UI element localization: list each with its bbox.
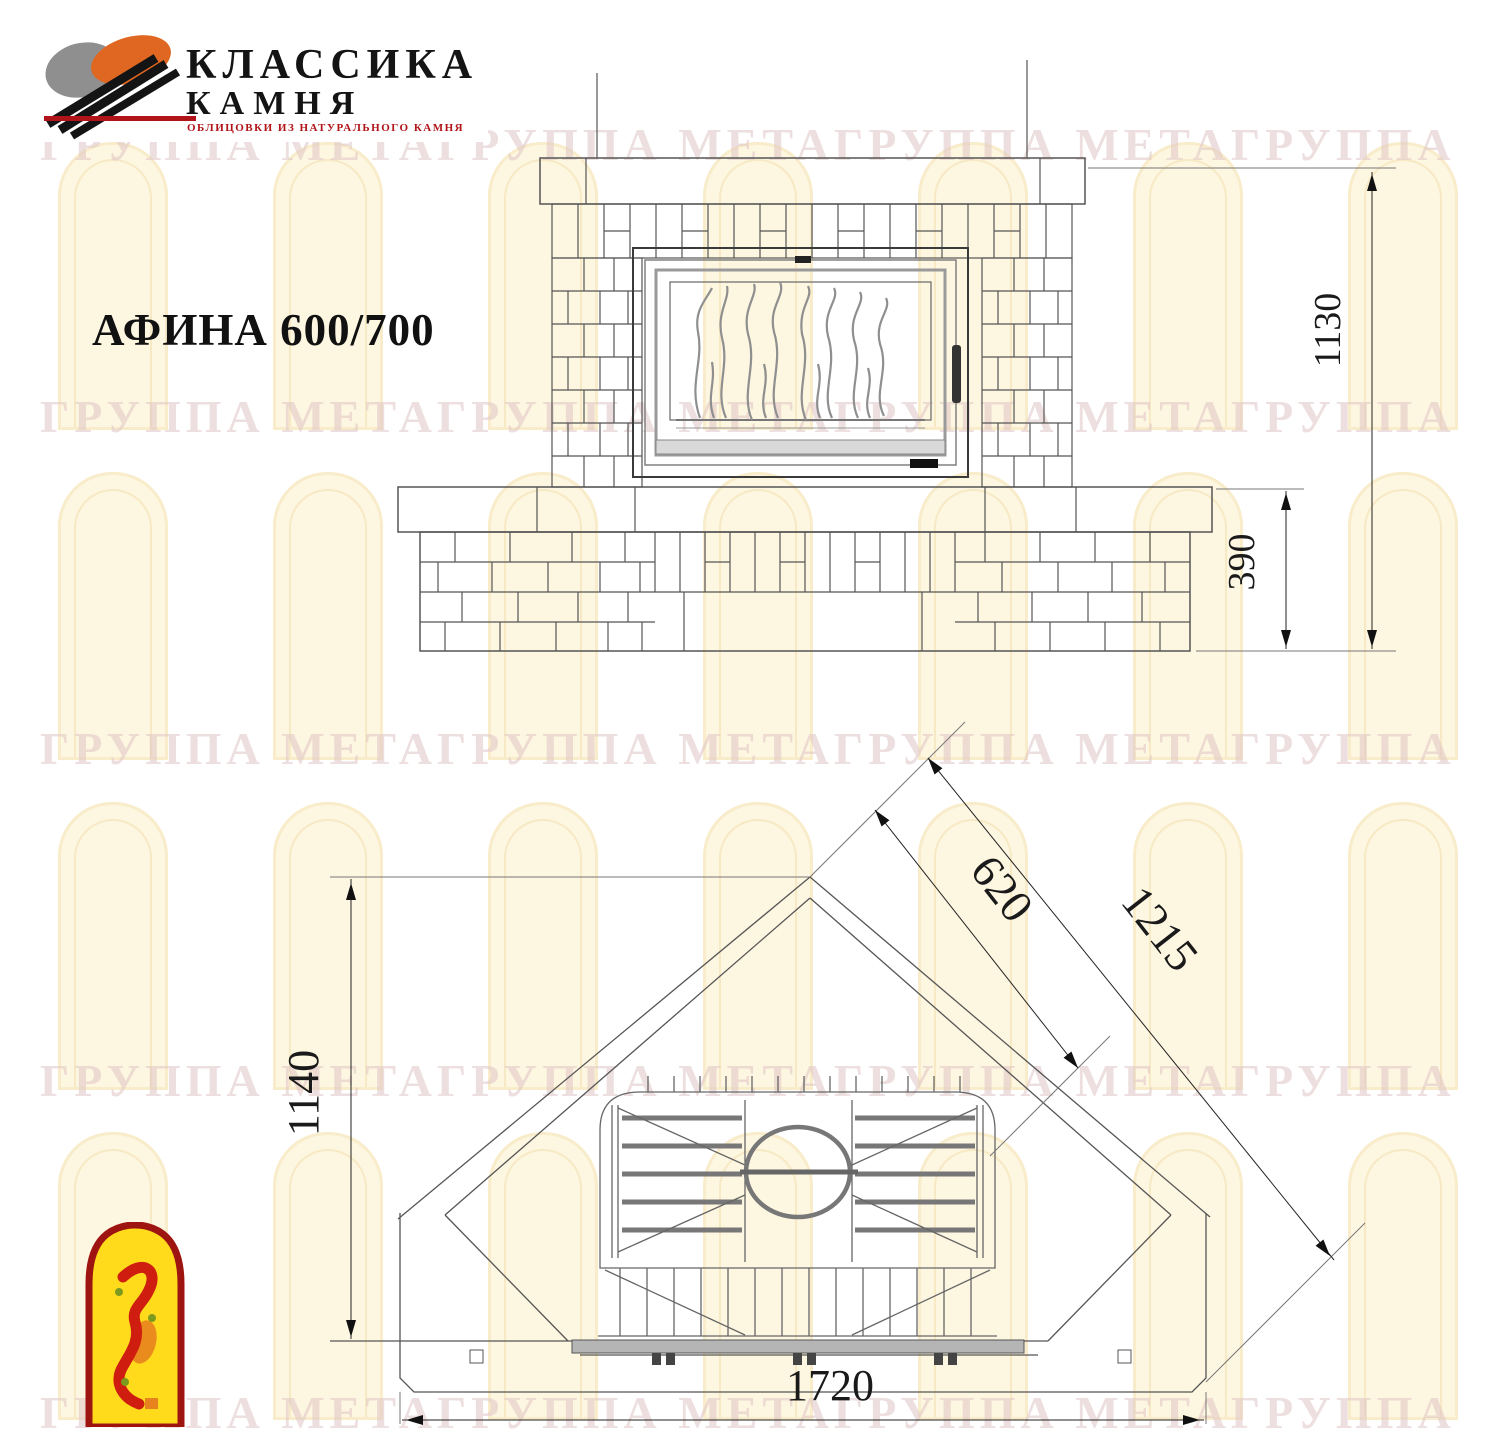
- bench-edge-right: [810, 898, 1171, 1215]
- plan-dimensions: [330, 722, 1365, 1424]
- fireplace-technical-drawing: 1130 390: [0, 0, 1500, 1427]
- logo-line2: КАМНЯ: [186, 85, 363, 122]
- dim-bench-height: 390: [1221, 534, 1263, 591]
- logo-red-line: [44, 116, 196, 121]
- logo-line1: КЛАССИКА: [186, 42, 478, 88]
- plan-view: [330, 877, 1210, 1392]
- door-handle: [952, 345, 961, 403]
- logo-brush-marks: [40, 30, 196, 136]
- door-latch: [795, 256, 811, 263]
- frame-top: [0, 0, 1500, 30]
- corner-emblem: [85, 1222, 185, 1432]
- firebox-insert-plan: [572, 1076, 1024, 1365]
- firebox-insert: [633, 248, 968, 477]
- dim-bench-front: 1215: [1112, 877, 1209, 981]
- dimension-arrows: [346, 174, 1377, 1425]
- dim-depth: 1140: [279, 1050, 328, 1136]
- front-elevation-view: [398, 60, 1212, 651]
- frame-right: [1464, 0, 1500, 1427]
- mantel-shelf: [540, 158, 1085, 204]
- flames: [695, 282, 887, 420]
- company-logo: КЛАССИКА КАМНЯ ОБЛИЦОВКИ ИЗ НАТУРАЛЬНОГО…: [36, 30, 488, 142]
- firebox-glass: [670, 282, 931, 420]
- frame-left: [0, 0, 36, 1427]
- company-logo-graphic: КЛАССИКА КАМНЯ ОБЛИЦОВКИ ИЗ НАТУРАЛЬНОГО…: [36, 30, 488, 142]
- dim-firebox-front: 620: [961, 846, 1044, 932]
- brand-plate: [910, 459, 938, 468]
- logo-subtitle: ОБЛИЦОВКИ ИЗ НАТУРАЛЬНОГО КАМНЯ: [187, 122, 464, 134]
- bench-edge-left: [445, 898, 810, 1215]
- page-title: АФИНА 600/700: [92, 304, 435, 356]
- hearth-front-bar: [572, 1340, 1024, 1353]
- dim-total-width: 1720: [786, 1361, 874, 1410]
- dim-front-height: 1130: [1307, 293, 1349, 368]
- bench-shelf: [398, 487, 1212, 532]
